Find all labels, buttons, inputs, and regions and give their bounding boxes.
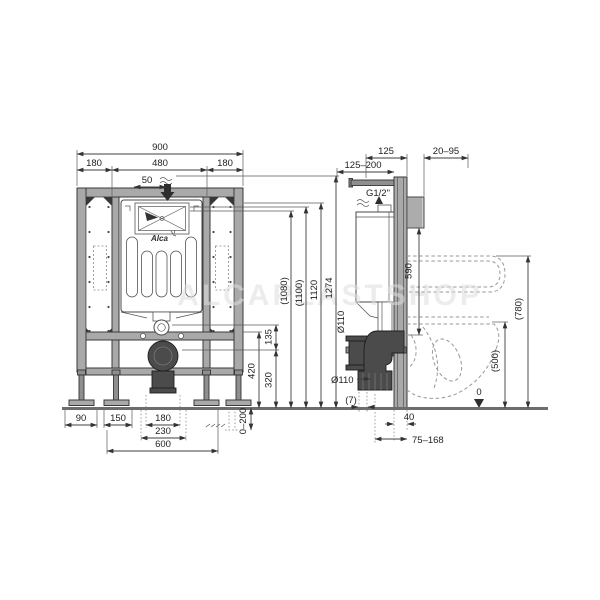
flush-access-box xyxy=(125,203,199,234)
bracket-hatch xyxy=(409,197,421,228)
installation-drawing: Alca xyxy=(0,0,600,600)
label-datum-0: 0 xyxy=(476,387,481,398)
dim-height-1100: (1100) xyxy=(294,280,305,307)
dim-bracket-20-95: 20–95 xyxy=(433,146,459,157)
dim-height-320: 320 xyxy=(264,372,275,388)
dim-width-center: 480 xyxy=(152,158,168,169)
wc-pan-outline xyxy=(407,256,505,398)
dim-height-1120: 1120 xyxy=(309,280,320,300)
dim-height-135: 135 xyxy=(264,329,275,345)
dim-leg-adjust: 0–200 xyxy=(238,408,249,434)
dim-height-420: 420 xyxy=(247,363,258,379)
brand-logo: Alca xyxy=(150,234,168,243)
datum-triangle xyxy=(474,399,484,408)
dim-height-1080: (1080) xyxy=(279,277,290,304)
dim-base-230: 230 xyxy=(155,426,171,437)
dim-height-780: (780) xyxy=(514,298,525,320)
dim-offset-50: 50 xyxy=(142,175,153,186)
dim-depth-40: 40 xyxy=(404,412,415,423)
dim-height-590: 590 xyxy=(404,263,415,279)
dim-width-right: 180 xyxy=(217,158,233,169)
drawing-canvas: Alca xyxy=(0,0,600,600)
dim-base-90: 90 xyxy=(76,413,87,424)
dim-height-500: (500) xyxy=(490,350,501,372)
dim-depth-125: 125 xyxy=(378,146,394,157)
dim-gap-7: (7) xyxy=(345,395,357,406)
dim-base-180: 180 xyxy=(155,413,171,424)
dim-height-1274: 1274 xyxy=(324,277,335,298)
dim-supply-125-200: 125–200 xyxy=(345,160,382,171)
label-dia110-lower: Ø110 xyxy=(331,375,354,386)
dim-adjust-75-168: 75–168 xyxy=(412,435,444,446)
dim-base-600: 600 xyxy=(155,439,171,450)
dim-base-150: 150 xyxy=(110,413,126,424)
wall-bracket xyxy=(407,197,424,228)
dim-width-total: 900 xyxy=(152,142,168,153)
front-view-cistern: Alca xyxy=(121,200,202,339)
dim-width-left: 180 xyxy=(86,158,102,169)
front-drain-elbow xyxy=(148,341,178,393)
water-squiggle xyxy=(357,200,369,207)
label-dia110-upper: Ø110 xyxy=(336,311,347,334)
label-thread-g12: G1/2" xyxy=(366,188,390,199)
